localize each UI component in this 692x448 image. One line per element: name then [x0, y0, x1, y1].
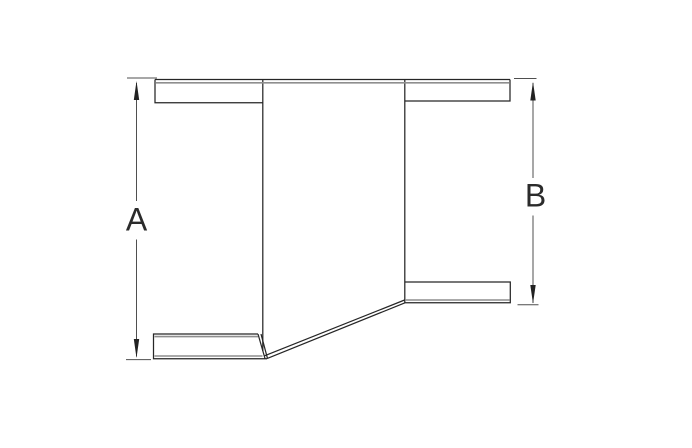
bottom-slant-outer: [267, 303, 405, 359]
inner-wall-lines: [155, 83, 510, 356]
dimension-a-arrow-down-icon: [134, 339, 139, 358]
bottom-slant-inner: [265, 300, 405, 356]
reducer-outline: [154, 80, 511, 359]
reducer-drawing: A B: [0, 0, 692, 448]
dimension-a-arrow-up-icon: [134, 81, 139, 100]
flange-bottom-left: [154, 334, 268, 359]
dimension-b-arrow-down-icon: [530, 285, 535, 304]
technical-drawing-canvas: A B: [0, 0, 692, 448]
dimension-b-arrow-up-icon: [530, 82, 535, 101]
dimension-a-label: A: [126, 202, 148, 238]
dimension-b-label: B: [525, 178, 546, 214]
